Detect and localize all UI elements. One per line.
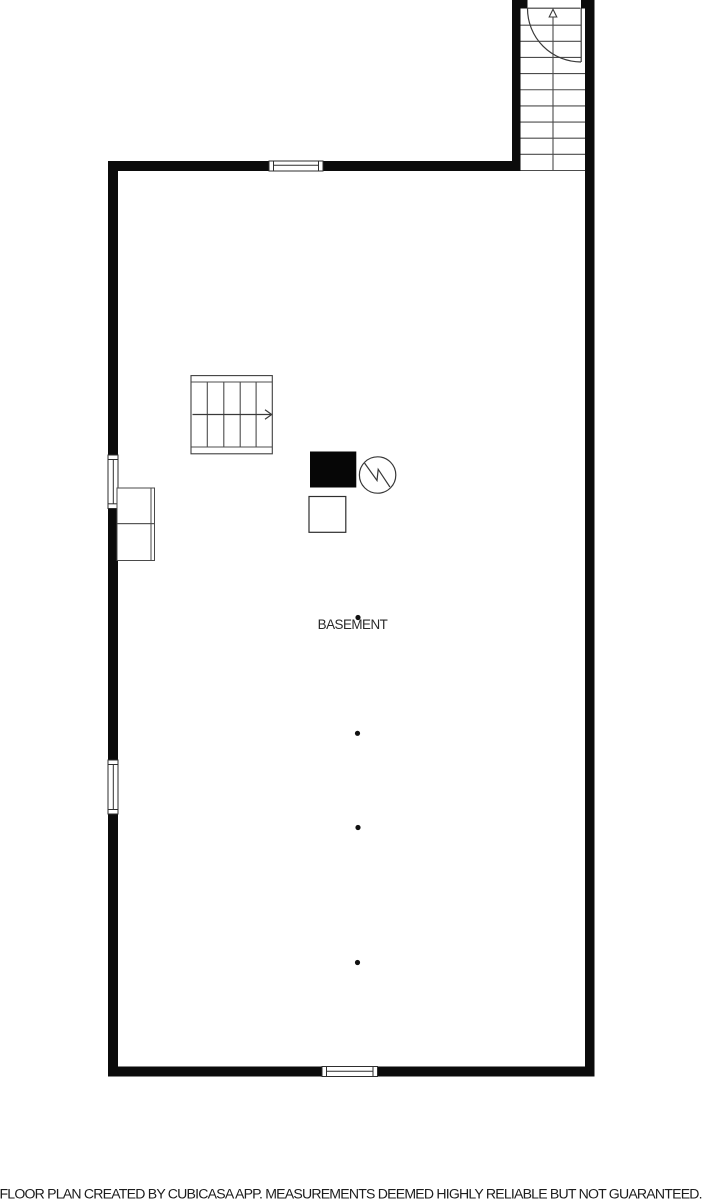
svg-text:BASEMENT: BASEMENT <box>318 617 388 632</box>
svg-text:FLOOR PLAN CREATED BY CUBICASA: FLOOR PLAN CREATED BY CUBICASA APP. MEAS… <box>0 1186 702 1200</box>
